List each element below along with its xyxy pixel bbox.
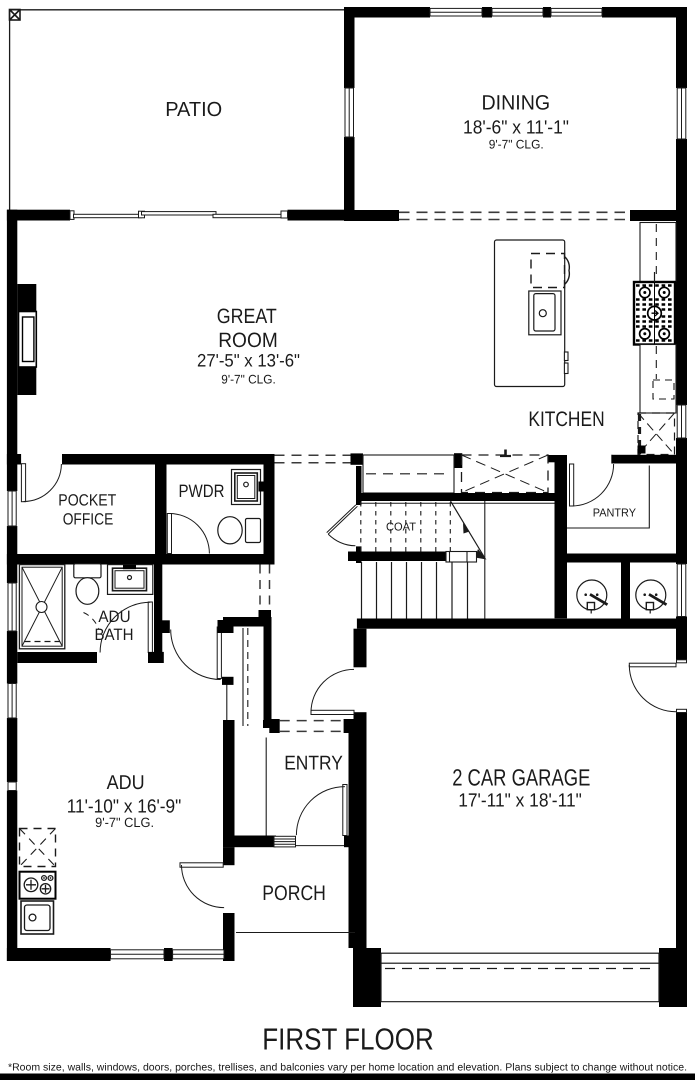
svg-text:9'-7" CLG.: 9'-7" CLG.	[221, 373, 276, 387]
svg-text:2 CAR GARAGE: 2 CAR GARAGE	[452, 765, 590, 791]
svg-text:FIRST FLOOR: FIRST FLOOR	[262, 1023, 434, 1057]
svg-text:GREAT: GREAT	[217, 305, 277, 328]
svg-text:ENTRY: ENTRY	[284, 753, 343, 775]
svg-text:17'-11" x 18'-11": 17'-11" x 18'-11"	[458, 791, 582, 812]
svg-text:*Room size, walls, windows, do: *Room size, walls, windows, doors, porch…	[8, 1063, 687, 1074]
svg-text:18'-6" x 11'-1": 18'-6" x 11'-1"	[463, 117, 569, 138]
svg-text:PORCH: PORCH	[262, 882, 326, 905]
svg-text:PWDR: PWDR	[179, 481, 225, 501]
svg-text:ROOM: ROOM	[218, 329, 278, 352]
svg-text:ADU: ADU	[107, 772, 145, 794]
svg-text:POCKET: POCKET	[58, 492, 116, 510]
svg-text:27'-5" x 13'-6": 27'-5" x 13'-6"	[197, 351, 300, 371]
svg-text:PANTRY: PANTRY	[593, 507, 636, 520]
svg-text:PATIO: PATIO	[165, 99, 222, 121]
svg-text:COAT: COAT	[386, 522, 416, 534]
svg-text:9'-7" CLG.: 9'-7" CLG.	[95, 815, 154, 830]
svg-text:9'-7" CLG.: 9'-7" CLG.	[489, 138, 544, 152]
svg-text:DINING: DINING	[482, 92, 551, 115]
svg-text:OFFICE: OFFICE	[63, 511, 114, 529]
svg-text:BATH: BATH	[94, 626, 133, 644]
svg-text:KITCHEN: KITCHEN	[528, 408, 604, 431]
